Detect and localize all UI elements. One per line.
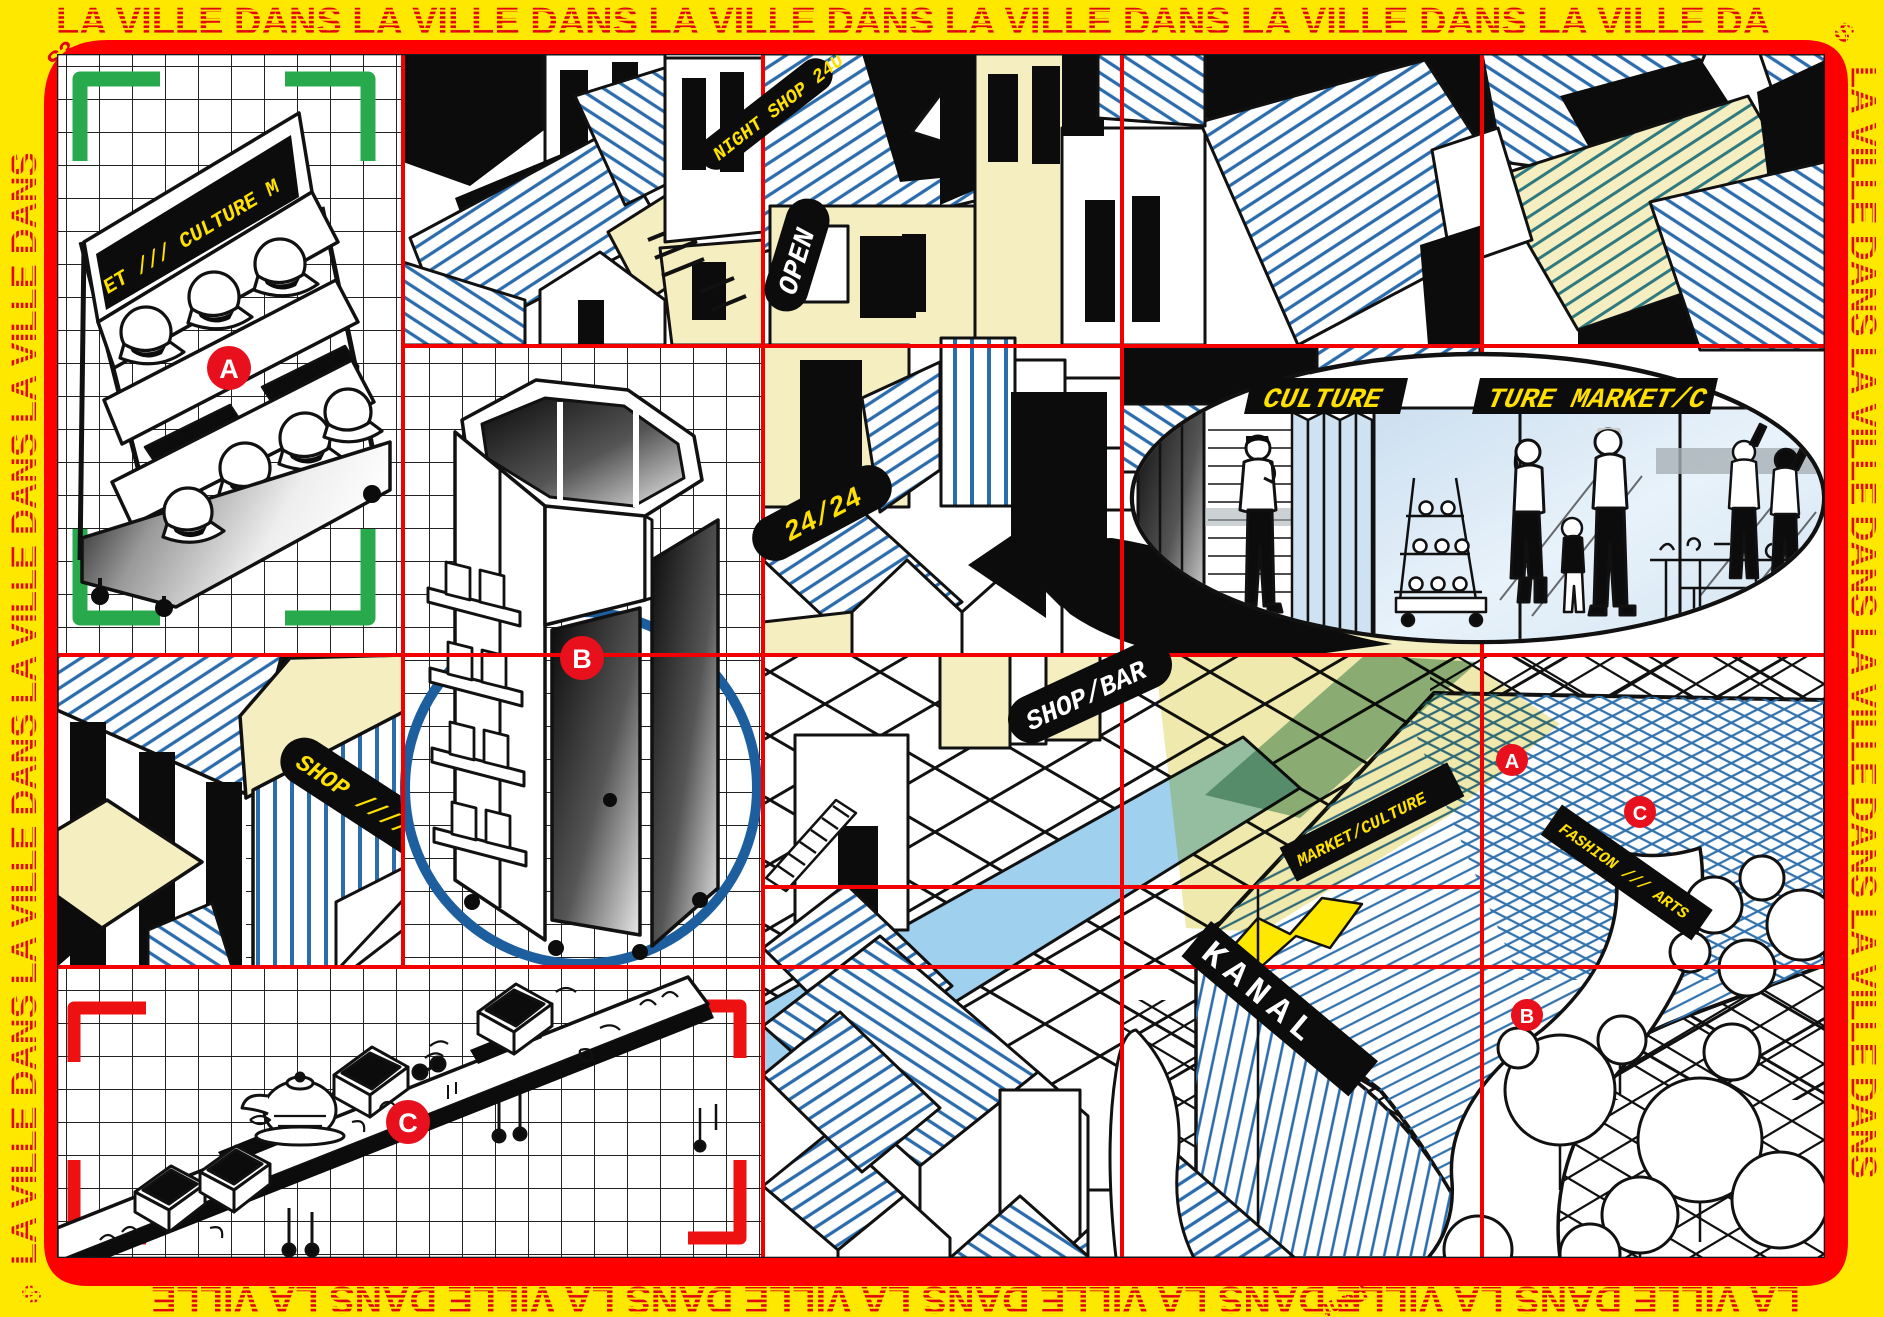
svg-text:B: B [572, 644, 592, 674]
svg-text:A: A [1505, 751, 1519, 773]
svg-text:C: C [398, 1108, 418, 1138]
svg-text:TURE MARKET/C: TURE MARKET/C [1484, 383, 1709, 416]
svg-text:A: A [219, 354, 239, 384]
svg-text:CULTURE: CULTURE [1260, 383, 1385, 416]
svg-text:C: C [1633, 803, 1647, 825]
svg-text:B: B [1520, 1006, 1534, 1028]
